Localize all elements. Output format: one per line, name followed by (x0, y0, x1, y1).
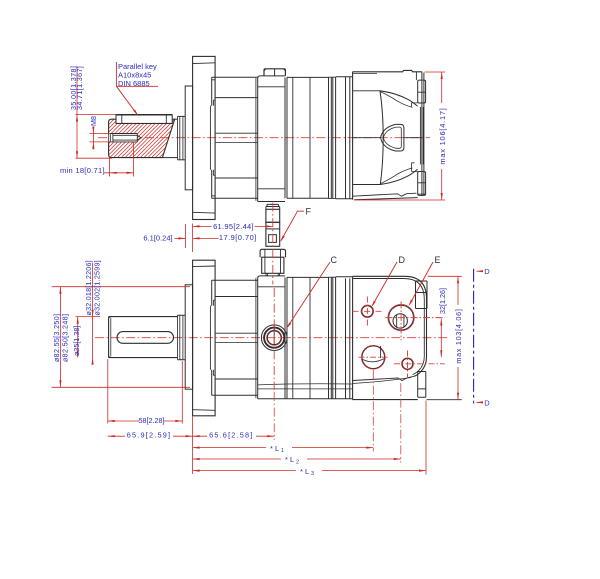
svg-text:max 103[4.06]: max 103[4.06] (454, 308, 463, 363)
svg-text:F: F (306, 206, 312, 216)
svg-text:ø35[1.38]: ø35[1.38] (72, 326, 81, 356)
svg-text:ø82.50[3.248]: ø82.50[3.248] (60, 314, 69, 362)
svg-text:* L: * L (285, 455, 294, 464)
svg-text:D: D (399, 255, 406, 265)
svg-text:* L: * L (300, 467, 309, 476)
svg-text:34.71[1.367]: 34.71[1.367] (75, 66, 84, 110)
svg-text:ø32.002[1.2599]: ø32.002[1.2599] (93, 260, 102, 315)
svg-text:2: 2 (296, 459, 299, 465)
svg-text:C: C (331, 255, 338, 265)
svg-text:58[2.28]: 58[2.28] (139, 416, 165, 425)
svg-text:M8: M8 (89, 116, 98, 126)
svg-text:65.6[2.58]: 65.6[2.58] (209, 430, 253, 439)
svg-text:max 106[4.17]: max 106[4.17] (438, 107, 447, 164)
svg-text:E: E (435, 255, 441, 265)
svg-text:32[1.26]: 32[1.26] (438, 288, 447, 314)
svg-text:* L: * L (270, 444, 279, 453)
svg-text:min 18[0.71]: min 18[0.71] (60, 166, 105, 175)
svg-text:17.9[0.70]: 17.9[0.70] (219, 233, 257, 242)
svg-text:D: D (484, 398, 490, 407)
svg-text:1: 1 (281, 448, 284, 454)
svg-text:6.1[0.24]: 6.1[0.24] (143, 233, 172, 242)
svg-text:61.95[2.44]: 61.95[2.44] (213, 222, 254, 231)
svg-text:3: 3 (311, 471, 314, 477)
svg-text:D: D (484, 267, 490, 276)
svg-text:65.9[2.59]: 65.9[2.59] (127, 430, 171, 439)
